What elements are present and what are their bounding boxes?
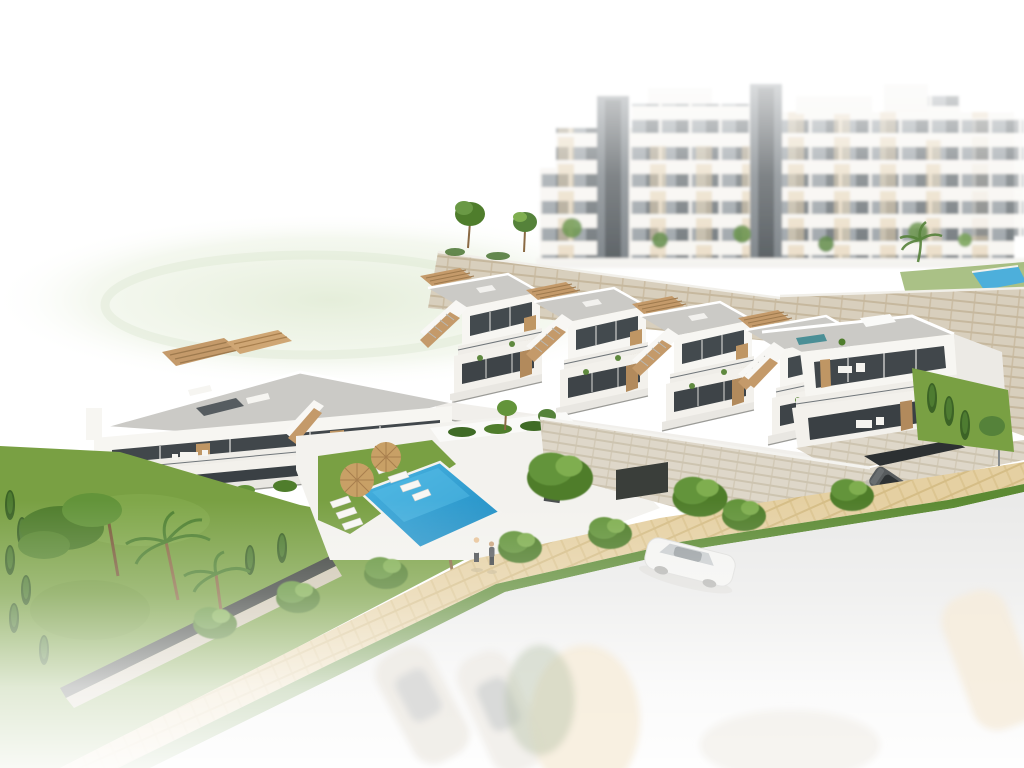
background-apartment-blocks [520,70,1024,282]
straw-umbrella-2 [340,463,374,497]
architectural-rendering [0,0,1024,768]
villa-chimney [86,408,102,440]
straw-umbrella-1 [371,442,401,472]
